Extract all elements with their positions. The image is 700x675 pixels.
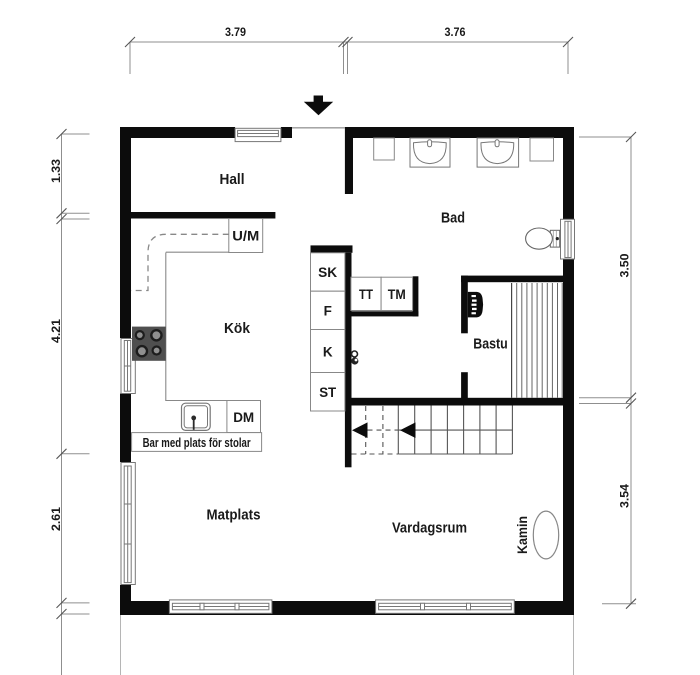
svg-text:3.50: 3.50	[618, 253, 632, 277]
svg-text:Kök: Kök	[224, 321, 251, 337]
svg-text:Kamin: Kamin	[515, 516, 530, 554]
svg-text:1.33: 1.33	[49, 159, 63, 183]
svg-text:SK: SK	[318, 265, 337, 280]
svg-text:Hall: Hall	[220, 172, 245, 188]
svg-text:3.79: 3.79	[225, 25, 246, 39]
svg-text:Bad: Bad	[441, 211, 465, 227]
svg-text:U/M: U/M	[232, 229, 259, 244]
svg-text:4.21: 4.21	[49, 319, 63, 343]
svg-text:K: K	[323, 345, 333, 360]
svg-text:Vardagsrum: Vardagsrum	[392, 521, 467, 537]
svg-text:3.76: 3.76	[445, 25, 466, 39]
svg-text:TM: TM	[388, 287, 406, 302]
svg-text:TT: TT	[359, 287, 374, 302]
svg-text:Bastu: Bastu	[473, 337, 508, 353]
svg-text:Bar med plats för stolar: Bar med plats för stolar	[143, 436, 251, 450]
svg-text:3.54: 3.54	[618, 484, 632, 508]
svg-text:F: F	[324, 304, 332, 319]
svg-text:DM: DM	[233, 410, 254, 425]
svg-text:2.61: 2.61	[49, 507, 63, 531]
svg-text:Matplats: Matplats	[207, 508, 261, 524]
svg-text:ST: ST	[319, 385, 337, 400]
